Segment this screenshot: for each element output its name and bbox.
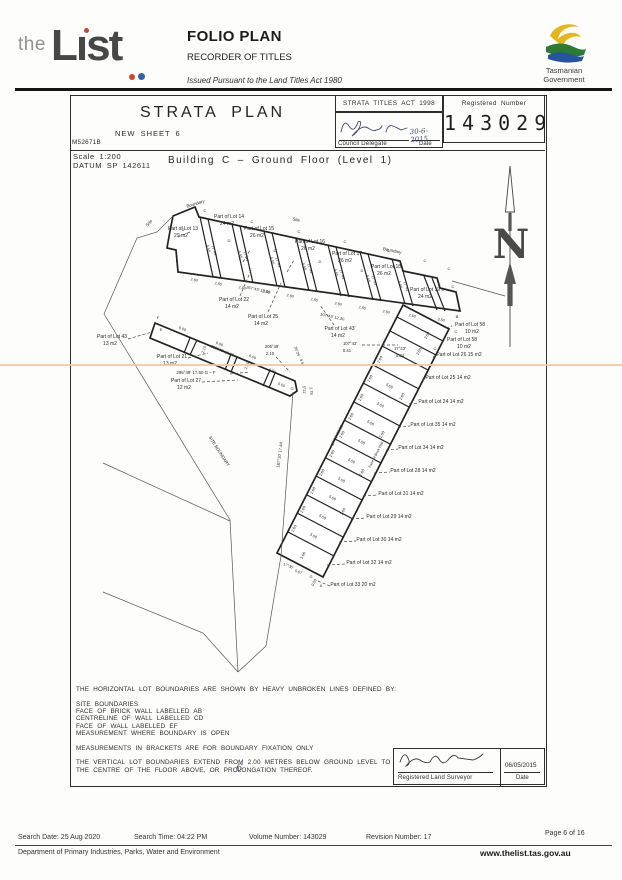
plan-text: 14 m2	[254, 321, 268, 327]
plan-text: Part of Lot 27	[171, 378, 201, 384]
plan-text: Part of Lot 30 14 m2	[356, 537, 402, 543]
plan-text: 2.60	[214, 281, 222, 286]
plan-text: Part of Lot 19 c	[410, 287, 444, 293]
site-boundary-line	[104, 216, 173, 314]
plan-text: 29 m2	[174, 233, 188, 239]
plan-text: 17°36'	[283, 562, 295, 570]
site-boundary-line	[238, 392, 293, 672]
north-arrow-head	[506, 166, 515, 212]
plan-text: Part of Lot 25 14 m2	[425, 375, 471, 381]
plan-text: 2.10	[266, 351, 275, 356]
plan-text: 2.60	[262, 289, 270, 294]
surveyor-box-divider	[500, 749, 501, 786]
plan-text: 295°49' 17.50 G – F	[176, 370, 216, 375]
plan-text: Part of Lot 33 20 m2	[330, 582, 376, 588]
plan-text: 107°43' 12.30	[320, 312, 346, 322]
plan-text: Part of Lot 15	[244, 226, 274, 232]
footer-search-date: Search Date: 25 Aug 2020	[18, 834, 100, 841]
plan-text: D	[319, 259, 322, 264]
surveyor-date-underline	[504, 772, 540, 773]
plan-text: 2.78	[309, 387, 314, 395]
leader-line	[202, 380, 238, 382]
plan-text: 6.00	[178, 326, 186, 332]
north-letter: N	[493, 221, 530, 268]
plan-text: Site	[292, 216, 301, 223]
plan-text: 6.00	[248, 354, 256, 360]
plan-text: E	[160, 327, 163, 332]
plan-text: 2.60	[238, 285, 246, 290]
plan-text: Part of Lot 29 14 m2	[366, 514, 412, 520]
footer-website: www.thelist.tas.gov.au	[480, 848, 571, 858]
plan-text: 10 m2	[465, 329, 479, 335]
plan-text: C	[344, 239, 347, 244]
plan-text: Part of Lot 58	[455, 322, 485, 328]
plan-text: D	[361, 268, 364, 273]
plan-text: C	[455, 329, 458, 334]
plan-text: Part of Lot 18	[371, 264, 401, 270]
plan-text: G	[290, 386, 293, 391]
plan-text: Part of Lot 24 14 m2	[418, 399, 464, 405]
plan-text: D	[182, 227, 185, 232]
plan-text: 26 m2	[338, 258, 352, 264]
plan-text: 5°11'	[302, 386, 307, 395]
plan-notes: THE HORIZONTAL LOT BOUNDARIES ARE SHOWN …	[76, 686, 446, 774]
plan-text: 205°49'	[265, 344, 279, 349]
plan-text: 26 m2	[377, 271, 391, 277]
plan-text: Part of Lot 58	[447, 337, 477, 343]
footer-volume-number: Volume Number: 143029	[249, 834, 326, 841]
surveyor-label: Registered Land Surveyor	[398, 775, 473, 781]
plan-text: 14 m2	[331, 333, 345, 339]
plan-text: Part of Lot 17	[332, 251, 362, 257]
plan-text: Part of Lot 26 15 m2	[436, 352, 482, 358]
leader-line	[128, 332, 152, 339]
leader-line	[268, 283, 281, 312]
plan-text: 0.84	[396, 353, 405, 358]
handwritten-annotation: 6	[235, 763, 242, 775]
footer-rule	[15, 845, 612, 846]
plan-text: C	[424, 258, 427, 263]
lot-strip-outline	[167, 207, 460, 311]
plan-text: 2.60	[286, 293, 294, 298]
surveyor-box: Registered Land Surveyor 06/05/2015 Date	[393, 748, 545, 785]
site-boundary-line	[103, 463, 230, 521]
plan-text: 3.50	[437, 317, 445, 322]
plan-text: C	[452, 284, 455, 289]
plan-text: C	[434, 346, 437, 351]
plan-text: 2.60	[190, 277, 198, 282]
plan-text: D	[228, 238, 231, 243]
footer-page-number: Page 6 of 16	[545, 830, 585, 837]
plan-text: 2.60	[310, 297, 318, 302]
plan-text: C	[204, 208, 207, 213]
plan-text: C	[298, 229, 301, 234]
plan-text: B	[456, 314, 459, 319]
surveyor-date-value: 06/05/2015	[505, 762, 537, 769]
plan-text: Part of Lot 22	[219, 297, 249, 303]
plan-text: 26 m2	[301, 246, 315, 252]
plan-text: C	[387, 248, 390, 253]
surveyor-date-label: Date	[516, 775, 529, 781]
plan-text: 26 m2	[250, 233, 264, 239]
plan-text: 35°25'	[293, 346, 301, 358]
plan-text: 13 m2	[103, 341, 117, 347]
plan-text: F	[157, 315, 160, 320]
plan-text: 2.60	[358, 305, 366, 310]
plan-text: 187°10' 17.44	[275, 441, 283, 468]
plan-text: Site	[144, 218, 153, 227]
plan-text: C	[448, 266, 451, 271]
plan-text: 17°43'	[394, 346, 406, 351]
plan-text: 10 m2	[457, 344, 471, 350]
plan-text: Part of Lot 21	[157, 354, 187, 360]
footer-department: Department of Primary Industries, Parks,…	[18, 849, 220, 856]
plan-text: Part of Lot 32 14 m2	[346, 560, 392, 566]
plan-text: Part of Lot 34 14 m2	[398, 445, 444, 451]
scan-artifact-line	[0, 364, 622, 366]
scanned-folio-plan-page: { "header": { "logo_the": "the", "logo_l…	[0, 0, 622, 880]
plan-text: Part of Lot 35 14 m2	[410, 422, 456, 428]
site-boundary-line	[452, 281, 505, 296]
plan-text: Part of Lot 14	[214, 214, 244, 220]
north-arrow-south-stem	[507, 284, 512, 306]
plan-text: 107°43'	[343, 341, 357, 346]
plan-text: G	[309, 574, 312, 579]
plan-text: Part of Lot 43'	[325, 326, 356, 332]
footer-search-time: Search Time: 04:22 PM	[134, 834, 207, 841]
footer-revision-number: Revision Number: 17	[366, 834, 431, 841]
site-boundary-line	[104, 314, 238, 672]
plan-text: 24 m2	[220, 221, 234, 227]
plan-text: Part of Lot 28 14 m2	[390, 468, 436, 474]
plan-text: 12 m2	[177, 385, 191, 391]
plan-text: 2.60	[382, 309, 390, 314]
plan-text: Part of Lot 25	[248, 314, 278, 320]
plan-text: 0.41	[343, 348, 352, 353]
plan-text: 24 m2	[418, 294, 432, 300]
plan-text: D	[274, 248, 277, 253]
plan-text: SITE BOUNDARY	[208, 435, 231, 467]
plan-text: C	[251, 219, 254, 224]
plan-text: A	[320, 583, 323, 588]
council-delegate-signature	[341, 122, 407, 137]
plan-text: Part of Lot 43	[97, 334, 127, 340]
plan-text: 14 m2	[225, 304, 239, 310]
surveyor-signature-underline	[398, 772, 493, 773]
plan-text: 2.60	[334, 301, 342, 306]
plan-text: Part of Lot 16	[295, 239, 325, 245]
plan-text: Part of Lot 31 14 m2	[378, 491, 424, 497]
plan-text: 0.50	[311, 578, 318, 586]
plan-text: 5.67	[294, 569, 302, 575]
site-boundary-line	[103, 592, 238, 672]
